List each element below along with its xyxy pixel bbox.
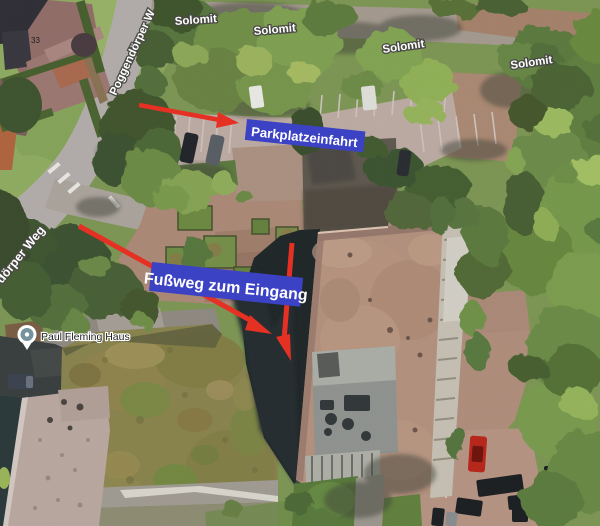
svg-text:33: 33 (31, 36, 40, 45)
svg-text:Paul Fleming Haus: Paul Fleming Haus (41, 331, 130, 343)
